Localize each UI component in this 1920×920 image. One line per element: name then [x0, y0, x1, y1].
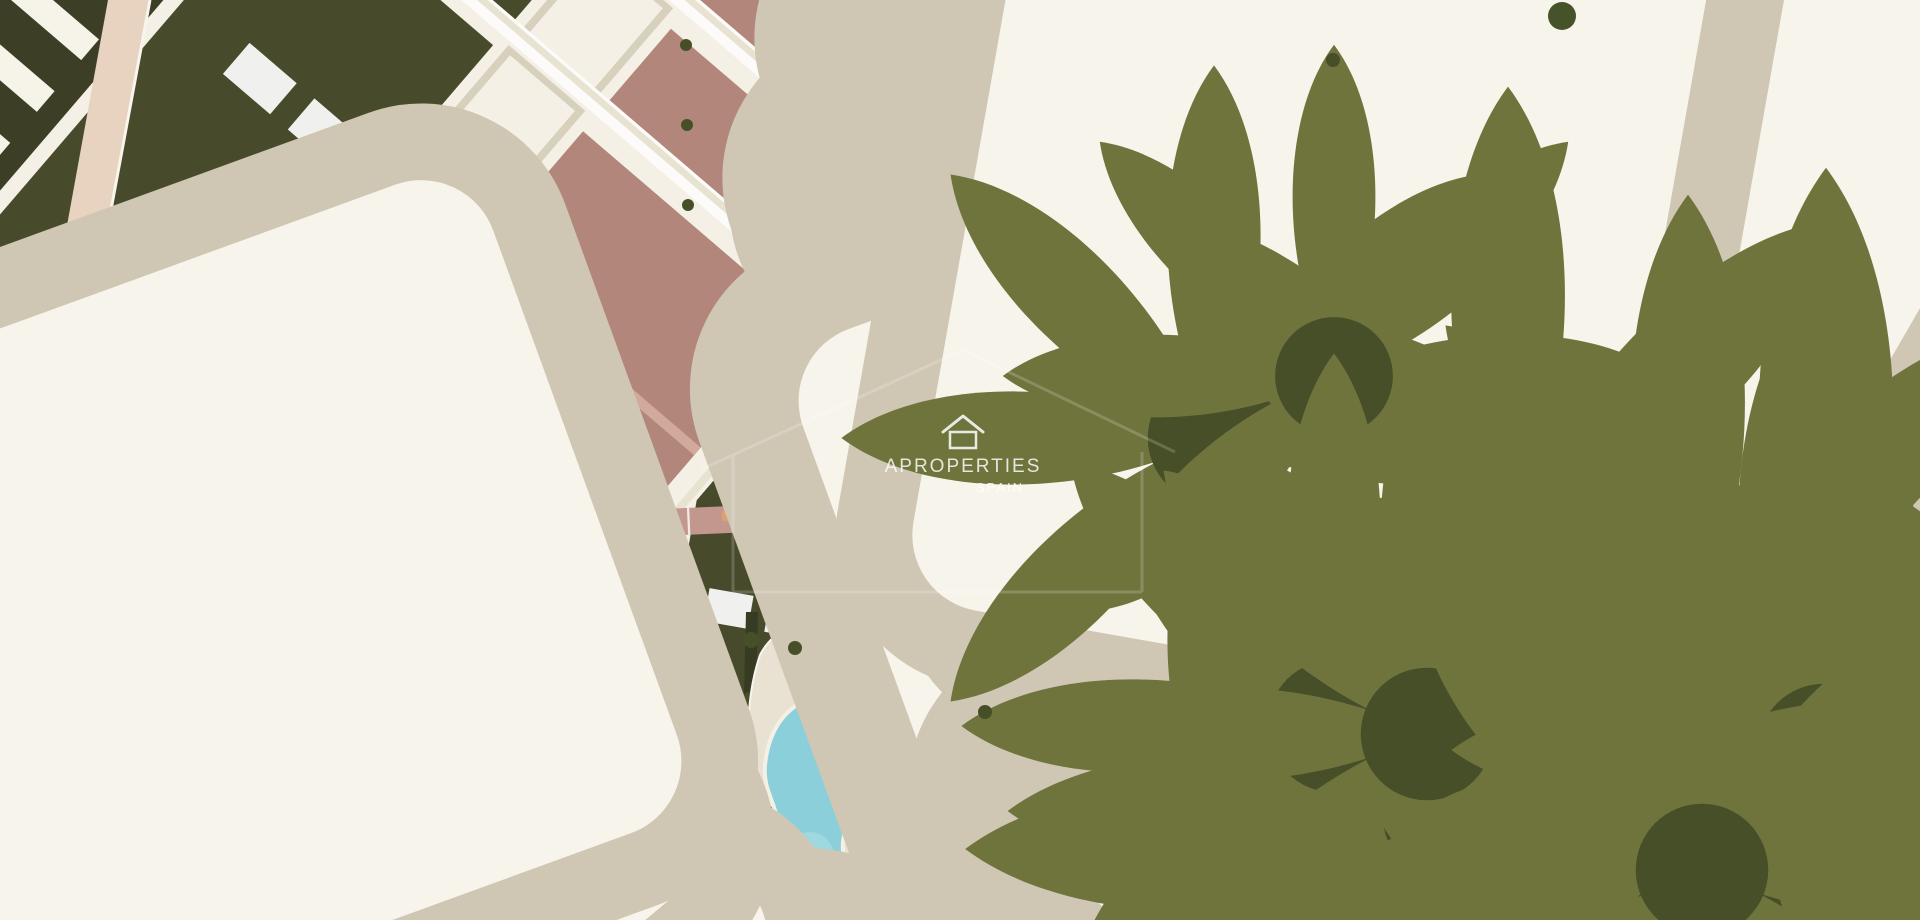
- site-plan: APROPERTIES SPAIN: [0, 0, 1920, 920]
- site-plan-image: APROPERTIES SPAIN: [0, 0, 1920, 920]
- brand-text: APROPERTIES: [885, 456, 1042, 477]
- region-text: SPAIN: [976, 480, 1024, 495]
